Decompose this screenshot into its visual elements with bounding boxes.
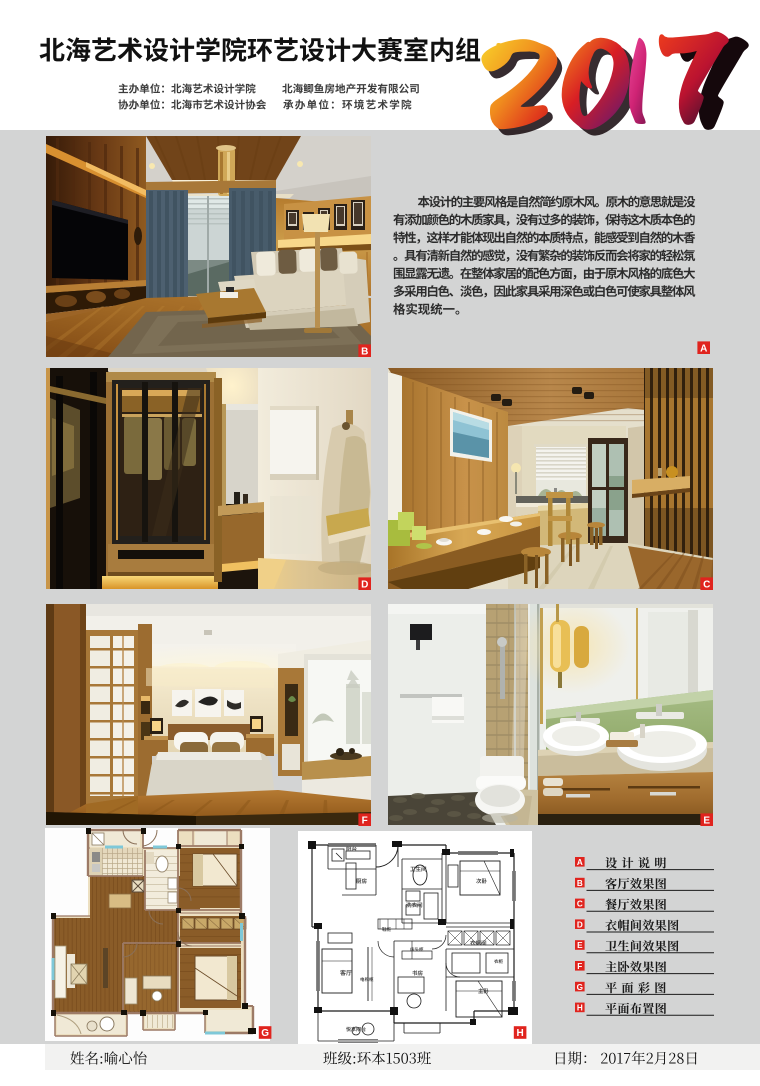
svg-text:B: B (361, 346, 368, 357)
svg-text:F: F (577, 962, 582, 971)
svg-text:F: F (362, 815, 368, 826)
svg-text:E: E (577, 941, 583, 950)
svg-text:A: A (577, 858, 583, 867)
svg-text:G: G (261, 1028, 269, 1039)
svg-text:D: D (361, 579, 368, 590)
svg-text:B: B (577, 879, 583, 888)
svg-text:C: C (703, 579, 710, 590)
svg-text:D: D (577, 920, 583, 929)
svg-text:C: C (577, 900, 583, 909)
svg-text:E: E (703, 815, 710, 826)
svg-text:G: G (577, 983, 583, 992)
svg-text:A: A (700, 343, 707, 354)
svg-text:H: H (577, 1004, 583, 1013)
svg-text:H: H (516, 1028, 523, 1039)
